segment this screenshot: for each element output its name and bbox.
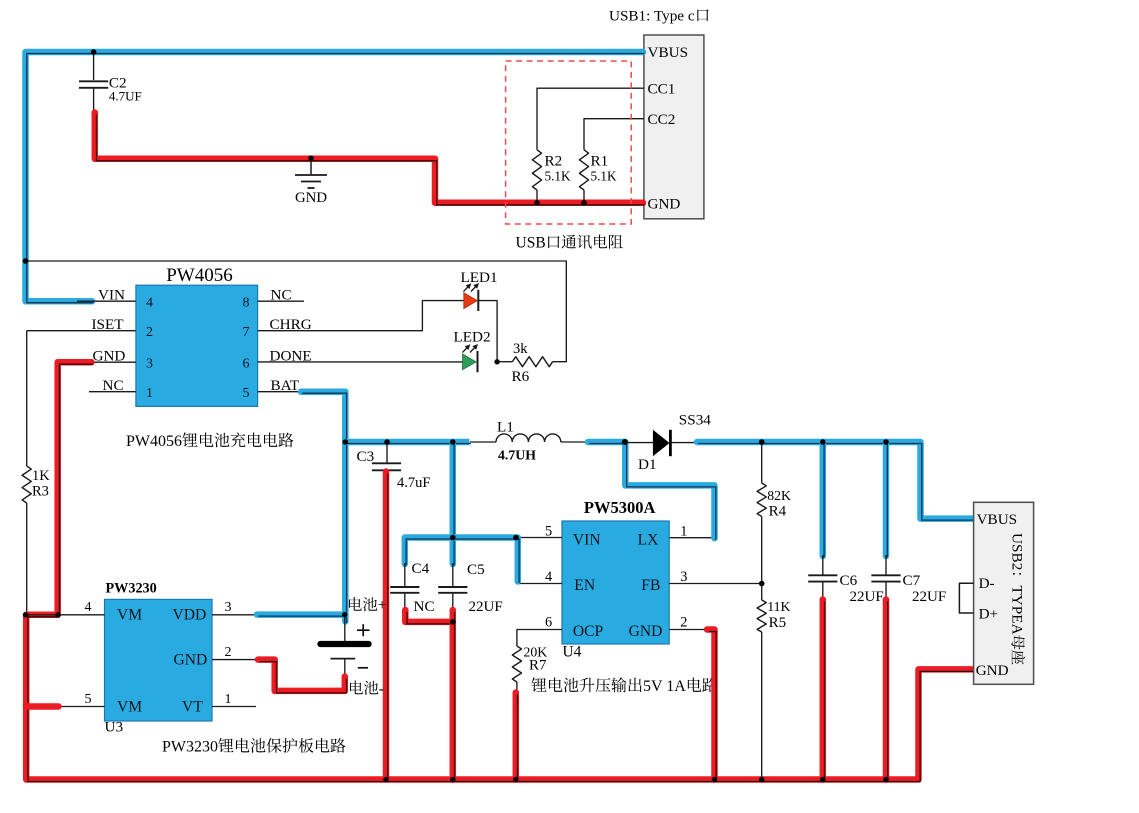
- svg-text:VT: VT: [182, 699, 203, 716]
- svg-text:NC: NC: [414, 598, 435, 615]
- svg-text:6: 6: [545, 615, 552, 631]
- svg-text:3k: 3k: [513, 341, 528, 357]
- svg-text:U: U: [1009, 533, 1026, 544]
- svg-text:GND: GND: [629, 623, 663, 640]
- svg-text:GND: GND: [648, 196, 681, 213]
- svg-text:R3: R3: [32, 484, 49, 500]
- svg-text:1K: 1K: [32, 468, 50, 484]
- svg-text:CC1: CC1: [648, 81, 676, 98]
- svg-text:R6: R6: [512, 368, 530, 385]
- svg-text:PW4056: PW4056: [126, 433, 182, 450]
- svg-text:2: 2: [225, 645, 232, 660]
- svg-text:D+: D+: [979, 606, 999, 623]
- svg-text:PW3230: PW3230: [162, 739, 218, 756]
- svg-text:R1: R1: [591, 153, 609, 170]
- svg-text:GND: GND: [976, 662, 1009, 679]
- svg-text:R7: R7: [529, 658, 547, 674]
- svg-text:USB1: Type c: USB1: Type c: [609, 8, 695, 25]
- svg-text:OCP: OCP: [573, 623, 604, 640]
- svg-text:GND: GND: [295, 190, 327, 206]
- svg-text:4.7UF: 4.7UF: [109, 89, 142, 104]
- svg-text:11K: 11K: [767, 599, 790, 614]
- svg-text:5: 5: [243, 386, 250, 401]
- svg-text:LED1: LED1: [461, 269, 498, 286]
- svg-text:4: 4: [146, 296, 153, 311]
- svg-text:VDD: VDD: [173, 607, 207, 624]
- svg-text:GND: GND: [93, 348, 126, 365]
- svg-text:NC: NC: [271, 287, 292, 304]
- svg-text:VBUS: VBUS: [977, 511, 1018, 528]
- svg-text:PW5300A: PW5300A: [584, 498, 656, 517]
- svg-text:3: 3: [680, 569, 687, 585]
- svg-text:BAT: BAT: [271, 377, 300, 394]
- svg-text:2: 2: [146, 325, 153, 340]
- svg-text:2: 2: [1009, 563, 1026, 571]
- svg-text:2: 2: [680, 615, 687, 631]
- svg-text:R2: R2: [545, 153, 563, 170]
- svg-text:R5: R5: [769, 615, 787, 631]
- svg-text:R4: R4: [769, 504, 787, 520]
- svg-text:VM: VM: [117, 699, 142, 716]
- svg-text:3: 3: [146, 357, 153, 372]
- svg-text:5.1K: 5.1K: [545, 169, 571, 184]
- svg-text:7: 7: [243, 325, 250, 340]
- svg-text:NC: NC: [103, 377, 124, 394]
- svg-text:VM: VM: [117, 607, 142, 624]
- svg-text:C7: C7: [903, 572, 921, 589]
- svg-text:U4: U4: [563, 644, 582, 661]
- svg-text:1: 1: [146, 386, 153, 401]
- svg-text:4: 4: [545, 569, 552, 585]
- svg-text:E: E: [1009, 614, 1026, 623]
- svg-text:EN: EN: [574, 577, 595, 594]
- svg-text:VBUS: VBUS: [648, 44, 689, 61]
- svg-text:VIN: VIN: [98, 287, 125, 304]
- svg-text:C3: C3: [357, 448, 375, 465]
- svg-text:D-: D-: [979, 575, 995, 592]
- svg-text:B: B: [1009, 553, 1026, 563]
- svg-text:1: 1: [225, 692, 232, 707]
- svg-text:FB: FB: [641, 577, 660, 594]
- svg-text:3: 3: [225, 600, 232, 615]
- svg-text:CHRG: CHRG: [270, 316, 312, 333]
- svg-text:1: 1: [680, 524, 687, 540]
- svg-text:SS34: SS34: [679, 412, 711, 429]
- svg-text:DONE: DONE: [270, 348, 312, 365]
- svg-text:LX: LX: [638, 532, 659, 549]
- svg-text:ISET: ISET: [92, 316, 125, 333]
- svg-text:C6: C6: [840, 572, 858, 589]
- svg-text:5V 1A: 5V 1A: [643, 678, 686, 695]
- svg-text:D1: D1: [638, 456, 657, 473]
- svg-text:-: -: [379, 681, 384, 698]
- svg-text:82K: 82K: [767, 488, 791, 503]
- svg-text:GND: GND: [174, 652, 208, 669]
- svg-text:CC2: CC2: [648, 111, 676, 128]
- svg-text:22UF: 22UF: [850, 589, 884, 605]
- svg-text:+: +: [378, 597, 387, 614]
- svg-text:PW3230: PW3230: [106, 581, 157, 597]
- svg-text:22UF: 22UF: [912, 589, 946, 605]
- svg-text:5.1K: 5.1K: [591, 169, 617, 184]
- svg-text:L1: L1: [497, 419, 514, 436]
- svg-text:LED2: LED2: [454, 329, 491, 346]
- svg-text:P: P: [1009, 606, 1026, 614]
- svg-text:VIN: VIN: [573, 532, 601, 549]
- svg-text:4: 4: [85, 600, 92, 615]
- svg-text:C5: C5: [467, 561, 485, 578]
- svg-text:4.7uF: 4.7uF: [397, 475, 430, 491]
- svg-text:5: 5: [85, 692, 92, 707]
- svg-text:USB: USB: [516, 235, 546, 252]
- svg-text:8: 8: [243, 296, 250, 311]
- svg-text:6: 6: [243, 357, 250, 372]
- svg-text:4.7UH: 4.7UH: [498, 448, 536, 463]
- svg-text:Y: Y: [1009, 595, 1026, 606]
- svg-text:U3: U3: [105, 719, 124, 736]
- svg-text:A: A: [1009, 624, 1026, 635]
- svg-text:S: S: [1009, 544, 1026, 552]
- svg-text:22UF: 22UF: [469, 599, 503, 615]
- svg-text:C4: C4: [412, 560, 430, 577]
- svg-text:PW4056: PW4056: [166, 265, 233, 286]
